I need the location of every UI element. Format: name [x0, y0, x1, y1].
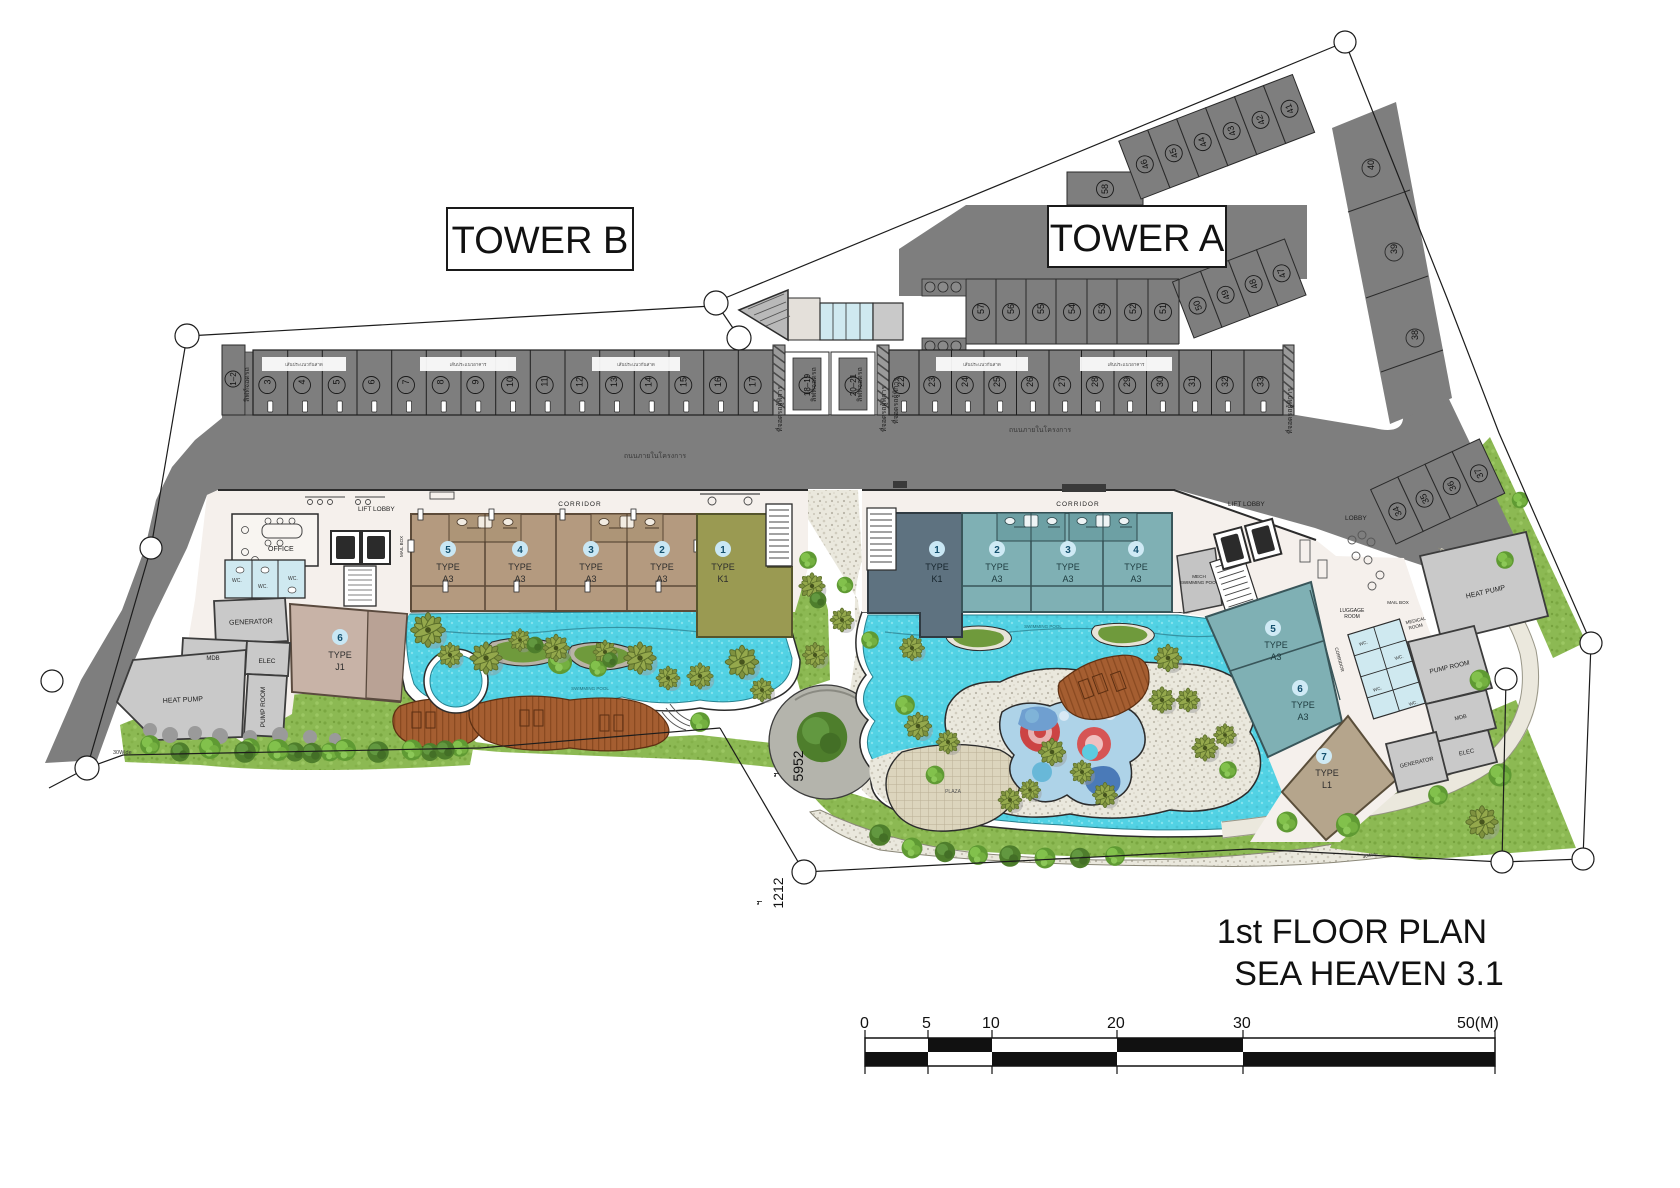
svg-text:39: 39: [1389, 244, 1399, 254]
svg-text:9: 9: [470, 379, 480, 384]
svg-text:ELEC: ELEC: [259, 658, 276, 665]
svg-text:6: 6: [337, 633, 343, 644]
svg-text:53: 53: [1097, 304, 1107, 314]
svg-text:33: 33: [1256, 377, 1266, 387]
svg-text:L1: L1: [1322, 780, 1332, 790]
svg-text:MECH: MECH: [1192, 574, 1206, 579]
svg-text:A3: A3: [514, 574, 525, 584]
svg-text:56: 56: [1006, 304, 1016, 314]
svg-text:PLAZA: PLAZA: [945, 789, 962, 795]
svg-text:MAIL BOX: MAIL BOX: [1387, 600, 1409, 605]
svg-text:29: 29: [1122, 377, 1132, 387]
svg-text:5952: 5952: [790, 750, 806, 781]
svg-text:1: 1: [720, 545, 726, 556]
svg-text:3: 3: [1065, 545, 1071, 556]
svg-text:LIFT LOBBY: LIFT LOBBY: [1228, 501, 1265, 508]
svg-text:10: 10: [505, 377, 515, 387]
svg-text:OFFICE: OFFICE: [268, 546, 294, 553]
svg-text:ที่จอดรถผู้พิการ: ที่จอดรถผู้พิการ: [775, 386, 784, 432]
svg-text:31: 31: [1187, 377, 1197, 387]
svg-text:4: 4: [1133, 545, 1139, 556]
svg-text:TYPE: TYPE: [1056, 562, 1080, 572]
svg-text:2: 2: [659, 545, 665, 556]
svg-text:4: 4: [297, 379, 307, 384]
svg-text:TYPE: TYPE: [711, 562, 735, 572]
svg-text:TYPE: TYPE: [579, 562, 603, 572]
svg-text:16: 16: [713, 377, 723, 387]
svg-text:52: 52: [1128, 304, 1138, 314]
svg-text:CORRIDOR: CORRIDOR: [1056, 501, 1099, 508]
svg-text:A3: A3: [1270, 652, 1281, 662]
svg-text:TYPE: TYPE: [985, 562, 1009, 572]
svg-text:7: 7: [401, 379, 411, 384]
svg-text:57: 57: [976, 304, 986, 314]
svg-text:11: 11: [540, 377, 550, 386]
svg-text:5: 5: [332, 379, 342, 384]
svg-text:1st FLOOR PLAN: 1st FLOOR PLAN: [1217, 913, 1487, 951]
svg-text:23: 23: [927, 377, 937, 387]
svg-text:17: 17: [748, 377, 758, 387]
svg-text:SEA HEAVEN 3.1: SEA HEAVEN 3.1: [1234, 955, 1504, 993]
svg-text:PUMP ROOM: PUMP ROOM: [260, 687, 267, 728]
svg-text:26: 26: [1025, 377, 1035, 387]
svg-text:27: 27: [1057, 377, 1067, 387]
svg-text:TOWER B: TOWER B: [452, 220, 629, 262]
svg-text:WC.: WC.: [232, 578, 242, 584]
svg-text:TYPE: TYPE: [1124, 562, 1148, 572]
svg-text:เส้นประแนวอาคาร: เส้นประแนวอาคาร: [450, 362, 487, 367]
svg-text:7: 7: [1321, 752, 1327, 763]
svg-text:ที่จอดรถผู้พิการ: ที่จอดรถผู้พิการ: [879, 386, 888, 432]
svg-text:A3: A3: [585, 574, 596, 584]
svg-text:LOBBY: LOBBY: [1345, 515, 1367, 522]
svg-text:ลิฟท์จอดรถ: ลิฟท์จอดรถ: [810, 367, 818, 402]
svg-text:K1: K1: [931, 574, 942, 584]
svg-text:K1: K1: [717, 574, 728, 584]
svg-text:40: 40: [1366, 160, 1376, 170]
svg-text:6: 6: [366, 379, 376, 384]
svg-text:4: 4: [517, 545, 523, 556]
svg-text:TOWER A: TOWER A: [1050, 218, 1225, 260]
svg-text:ถนนภายในโครงการ: ถนนภายในโครงการ: [624, 451, 686, 460]
svg-text:TYPE: TYPE: [436, 562, 460, 572]
svg-text:28: 28: [1090, 377, 1100, 387]
svg-text:ฯ: ฯ: [754, 900, 764, 905]
svg-text:5: 5: [445, 545, 451, 556]
svg-text:55: 55: [1036, 304, 1046, 314]
svg-text:1212: 1212: [770, 877, 786, 908]
svg-text:8: 8: [436, 379, 446, 384]
svg-text:15: 15: [678, 377, 688, 387]
svg-text:30Wide: 30Wide: [113, 750, 132, 756]
svg-text:ลิฟท์จอดรถ: ลิฟท์จอดรถ: [856, 367, 864, 402]
svg-text:ฯ: ฯ: [771, 772, 781, 777]
svg-text:SWIMMING POOL: SWIMMING POOL: [1180, 580, 1219, 585]
svg-text:TYPE: TYPE: [328, 650, 352, 660]
svg-text:ลิฟท์จอดรถ: ลิฟท์จอดรถ: [243, 367, 251, 402]
svg-text:1–2: 1–2: [229, 372, 238, 386]
svg-text:50(M): 50(M): [1457, 1015, 1499, 1032]
svg-text:5: 5: [1270, 624, 1276, 635]
svg-text:CORRIDOR: CORRIDOR: [558, 501, 601, 508]
svg-text:A3: A3: [1130, 574, 1141, 584]
svg-text:ROOM: ROOM: [1344, 614, 1360, 620]
svg-text:A3: A3: [442, 574, 453, 584]
svg-text:30: 30: [1155, 377, 1165, 387]
svg-text:MDB: MDB: [206, 656, 219, 662]
svg-text:WC.: WC.: [258, 584, 268, 590]
svg-text:TYPE: TYPE: [650, 562, 674, 572]
svg-text:เส้นประแนวกันสาด: เส้นประแนวกันสาด: [285, 362, 323, 367]
svg-text:25: 25: [992, 377, 1002, 387]
svg-text:ที่จอดรถผู้พิการ: ที่จอดรถผู้พิการ: [1285, 388, 1294, 434]
svg-text:3: 3: [588, 545, 594, 556]
svg-text:0: 0: [860, 1015, 869, 1032]
svg-text:เส้นประแนวอาคาร: เส้นประแนวอาคาร: [1108, 362, 1145, 367]
svg-text:TYPE: TYPE: [1315, 768, 1339, 778]
svg-text:WC.: WC.: [288, 576, 298, 582]
svg-text:2: 2: [994, 545, 1000, 556]
svg-text:TYPE: TYPE: [508, 562, 532, 572]
svg-text:MAIL BOX: MAIL BOX: [399, 536, 404, 557]
svg-text:A3: A3: [1062, 574, 1073, 584]
svg-text:1: 1: [934, 545, 940, 556]
svg-text:12: 12: [574, 377, 584, 387]
svg-text:ถนนภายในโครงการ: ถนนภายในโครงการ: [1009, 425, 1071, 434]
svg-text:24: 24: [960, 377, 970, 387]
svg-text:38: 38: [1410, 330, 1420, 340]
svg-text:14: 14: [644, 377, 654, 387]
svg-text:5: 5: [922, 1015, 931, 1032]
svg-text:10: 10: [982, 1015, 1000, 1032]
svg-text:TYPE: TYPE: [1291, 700, 1315, 710]
svg-text:6: 6: [1297, 684, 1303, 695]
svg-text:LIFT LOBBY: LIFT LOBBY: [358, 506, 395, 513]
svg-text:เส้นประแนวกันสาด: เส้นประแนวกันสาด: [617, 362, 655, 367]
svg-text:J1: J1: [335, 662, 345, 672]
svg-text:54: 54: [1067, 304, 1077, 314]
svg-text:30: 30: [1233, 1015, 1251, 1032]
svg-text:32: 32: [1220, 377, 1230, 387]
svg-text:20: 20: [1107, 1015, 1125, 1032]
svg-text:เส้นประแนวกันสาด: เส้นประแนวกันสาด: [963, 362, 1001, 367]
svg-text:A3: A3: [656, 574, 667, 584]
svg-text:58: 58: [1100, 184, 1110, 194]
svg-text:TYPE: TYPE: [925, 562, 949, 572]
svg-text:A3: A3: [991, 574, 1002, 584]
svg-text:3: 3: [262, 379, 272, 384]
svg-text:A3: A3: [1297, 712, 1308, 722]
svg-text:SWIMMING POOL: SWIMMING POOL: [571, 686, 609, 691]
svg-text:SWIMMING POOL: SWIMMING POOL: [1024, 624, 1062, 629]
svg-text:13: 13: [609, 377, 619, 387]
svg-text:ที่จอดรถผู้พิการ: ที่จอดรถผู้พิการ: [891, 378, 900, 424]
svg-text:51: 51: [1158, 304, 1168, 314]
svg-text:TYPE: TYPE: [1264, 640, 1288, 650]
